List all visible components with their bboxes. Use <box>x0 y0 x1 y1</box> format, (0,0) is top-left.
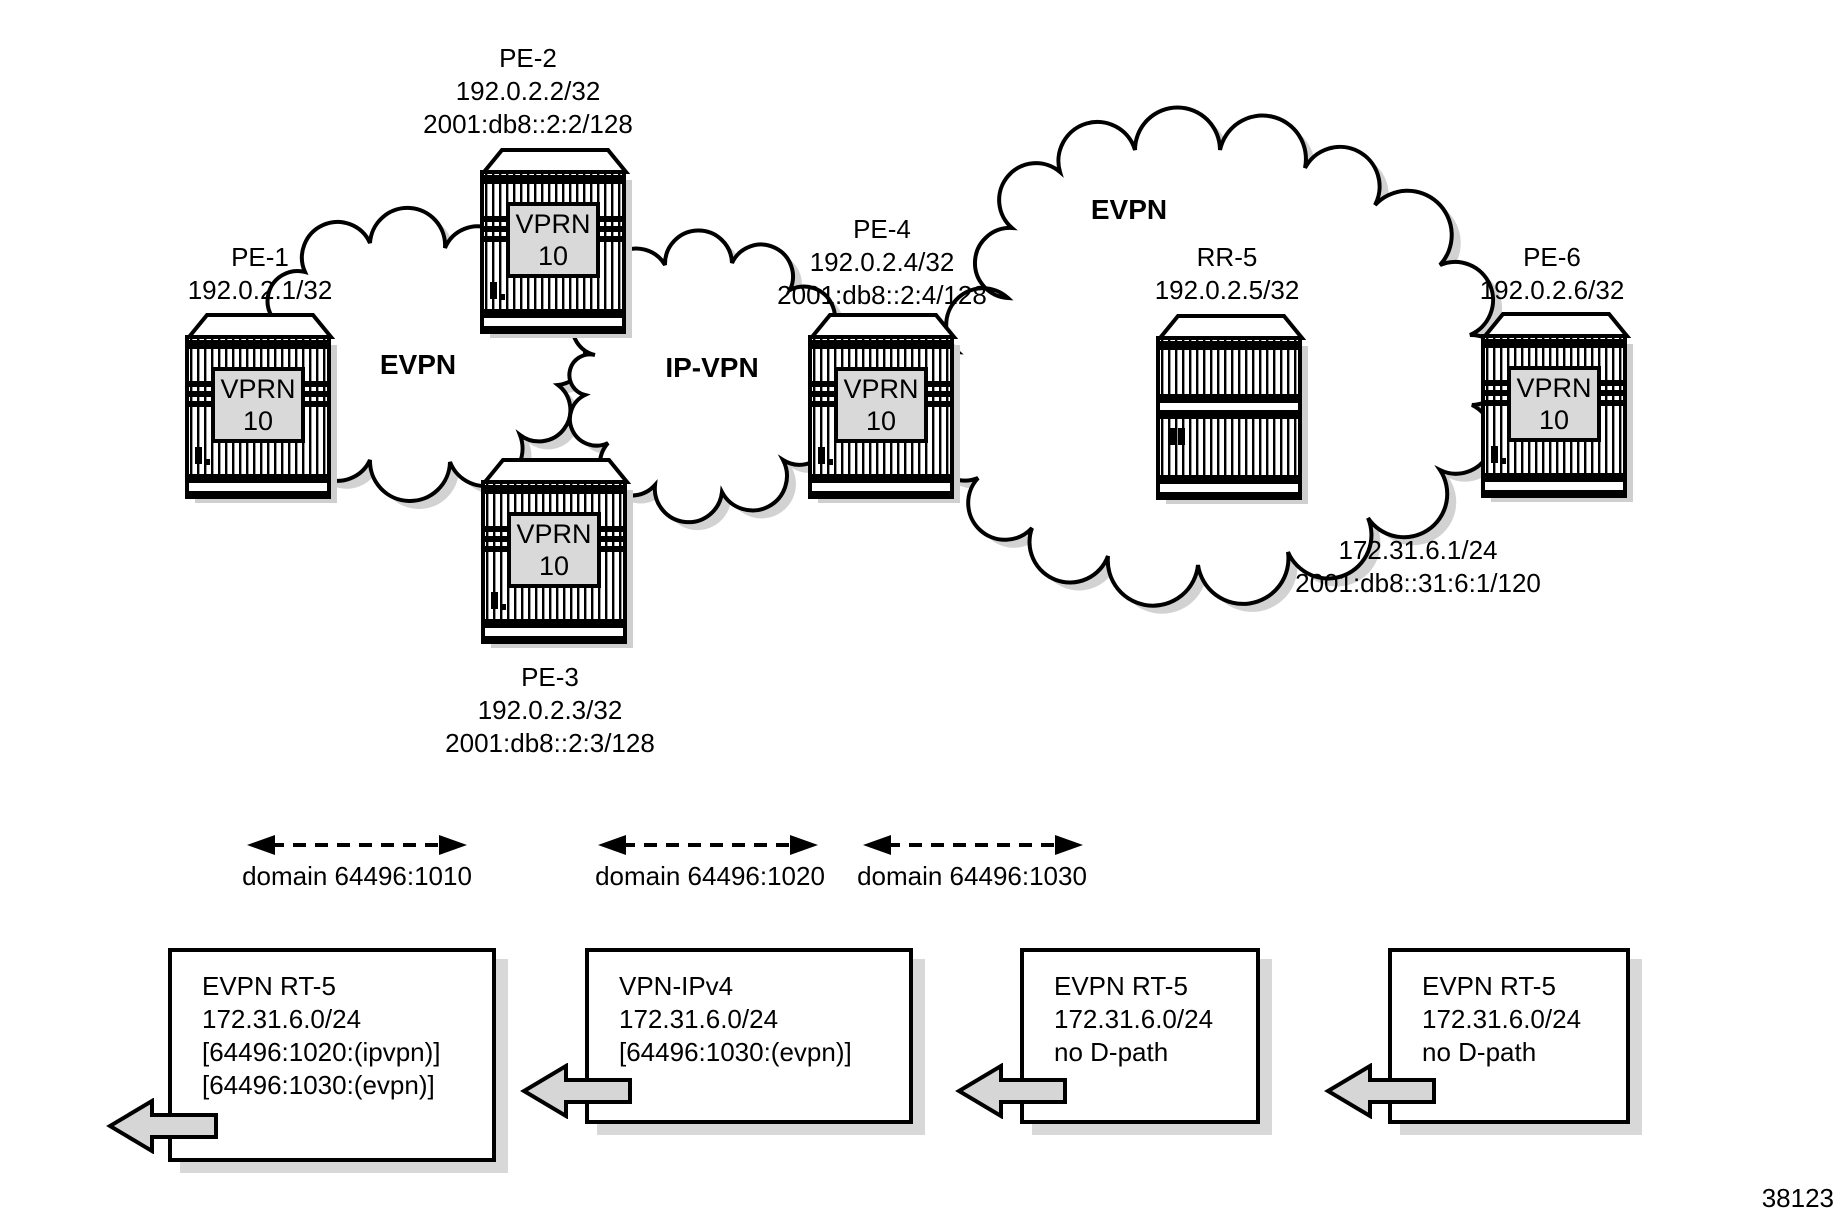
route-box-2-line-2: 172.31.6.0/24 <box>619 1003 909 1036</box>
route-box-4-line-3: no D-path <box>1422 1036 1626 1069</box>
pe-3-ipv6: 2001:db8::2:3/128 <box>400 727 700 760</box>
route-box-1-line-2: 172.31.6.0/24 <box>202 1003 492 1036</box>
pe-6-ipv4: 192.0.2.6/32 <box>1402 274 1702 307</box>
pe-2-name: PE-2 <box>378 42 678 75</box>
route-box-1-line-4: [64496:1030:(evpn)] <box>202 1069 492 1102</box>
pe-4-name: PE-4 <box>732 213 1032 246</box>
domain-arrow-2 <box>596 830 820 860</box>
rr-5-ipv4: 192.0.2.5/32 <box>1077 274 1377 307</box>
pe-3-service-label: VPRN <box>516 519 591 549</box>
pe-2-ipv6: 2001:db8::2:2/128 <box>378 108 678 141</box>
pe-3-label: PE-3 192.0.2.3/32 2001:db8::2:3/128 <box>400 661 700 760</box>
pe-6-name: PE-6 <box>1402 241 1702 274</box>
pe-3-ipv4: 192.0.2.3/32 <box>400 694 700 727</box>
pe-6-service-label: VPRN <box>1516 373 1591 403</box>
rr-5-name: RR-5 <box>1077 241 1377 274</box>
pe-1-service-label: VPRN <box>220 374 295 404</box>
pe-2-service-label: VPRN <box>515 209 590 239</box>
pe-4-router-icon: VPRN 10 <box>806 309 960 509</box>
route-advertise-arrow-3 <box>955 1063 1067 1119</box>
ipvpn-label: IP-VPN <box>612 352 812 384</box>
rr-5-router-icon <box>1154 310 1308 510</box>
pe-1-label: PE-1 192.0.2.1/32 <box>110 241 410 307</box>
pe-3-name: PE-3 <box>400 661 700 694</box>
domain-arrow-1 <box>245 830 469 860</box>
route-box-4-line-2: 172.31.6.0/24 <box>1422 1003 1626 1036</box>
route-advertise-arrow-2 <box>520 1063 632 1119</box>
route-box-3-line-3: no D-path <box>1054 1036 1256 1069</box>
route-box-1-line-3: [64496:1020:(ipvpn)] <box>202 1036 492 1069</box>
route-box-3-line-1: EVPN RT-5 <box>1054 970 1256 1003</box>
route-advertise-arrow-1 <box>106 1098 218 1154</box>
pe-3-service-id: 10 <box>539 551 569 581</box>
pe-4-ipv4: 192.0.2.4/32 <box>732 246 1032 279</box>
figure-number: 38123 <box>1590 1183 1834 1214</box>
pe-6-access-ipv4: 172.31.6.1/24 <box>1238 534 1598 567</box>
pe-4-service-id: 10 <box>866 406 896 436</box>
route-advertise-arrow-4 <box>1324 1063 1436 1119</box>
route-box-4-line-1: EVPN RT-5 <box>1422 970 1626 1003</box>
route-box-2-line-1: VPN-IPv4 <box>619 970 909 1003</box>
pe-6-router-icon: VPRN 10 <box>1479 308 1633 508</box>
pe-6-access-label: 172.31.6.1/24 2001:db8::31:6:1/120 <box>1238 534 1598 600</box>
pe-1-ipv4: 192.0.2.1/32 <box>110 274 410 307</box>
pe-1-router-icon: VPRN 10 <box>183 309 337 509</box>
route-box-2: VPN-IPv4 172.31.6.0/24 [64496:1030:(evpn… <box>585 948 913 1124</box>
domain-1-label: domain 64496:1010 <box>232 861 482 891</box>
route-box-3-line-2: 172.31.6.0/24 <box>1054 1003 1256 1036</box>
route-box-2-line-3: [64496:1030:(evpn)] <box>619 1036 909 1069</box>
pe-2-service-id: 10 <box>538 241 568 271</box>
pe-4-ipv6: 2001:db8::2:4/128 <box>732 279 1032 312</box>
domain-3-label: domain 64496:1030 <box>847 861 1097 891</box>
domain-arrow-3 <box>861 830 1085 860</box>
pe-6-label: PE-6 192.0.2.6/32 <box>1402 241 1702 307</box>
pe-4-service-label: VPRN <box>843 374 918 404</box>
domain-2-label: domain 64496:1020 <box>585 861 835 891</box>
pe-4-label: PE-4 192.0.2.4/32 2001:db8::2:4/128 <box>732 213 1032 312</box>
evpn-right-label: EVPN <box>1029 194 1229 226</box>
pe-1-name: PE-1 <box>110 241 410 274</box>
pe-3-router-icon: VPRN 10 <box>479 454 633 654</box>
pe-1-service-id: 10 <box>243 406 273 436</box>
pe-2-label: PE-2 192.0.2.2/32 2001:db8::2:2/128 <box>378 42 678 141</box>
pe-2-ipv4: 192.0.2.2/32 <box>378 75 678 108</box>
network-diagram: EVPN IP-VPN EVPN VPRN 10 VPRN 10 <box>0 0 1838 1216</box>
pe-6-access-ipv6: 2001:db8::31:6:1/120 <box>1238 567 1598 600</box>
rr-5-label: RR-5 192.0.2.5/32 <box>1077 241 1377 307</box>
evpn-left-label: EVPN <box>338 349 498 381</box>
route-box-1-line-1: EVPN RT-5 <box>202 970 492 1003</box>
pe-6-service-id: 10 <box>1539 405 1569 435</box>
pe-2-router-icon: VPRN 10 <box>478 144 632 344</box>
